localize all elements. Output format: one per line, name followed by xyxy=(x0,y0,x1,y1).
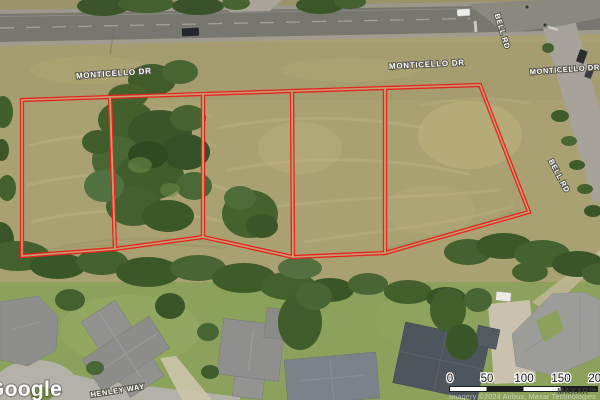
house-roof-f xyxy=(284,352,380,400)
scale-tick-200: 200 xyxy=(588,373,600,385)
white-car xyxy=(457,9,470,17)
maxar-watermark: MAXAR™ xyxy=(557,387,597,396)
white-trailer xyxy=(496,291,512,302)
scale-tick-0: 0 xyxy=(447,373,453,385)
google-logo: Google xyxy=(0,378,62,400)
scale-tick-150: 150 xyxy=(551,373,570,385)
scale-tick-100: 100 xyxy=(514,373,533,385)
map-viewport[interactable]: MONTICELLO DR MONTICELLO DR MONTICELLO D… xyxy=(0,0,600,400)
dark-truck xyxy=(182,28,199,37)
scale-tick-50: 50 xyxy=(481,373,494,385)
satellite-map[interactable]: MONTICELLO DR MONTICELLO DR MONTICELLO D… xyxy=(0,0,600,400)
